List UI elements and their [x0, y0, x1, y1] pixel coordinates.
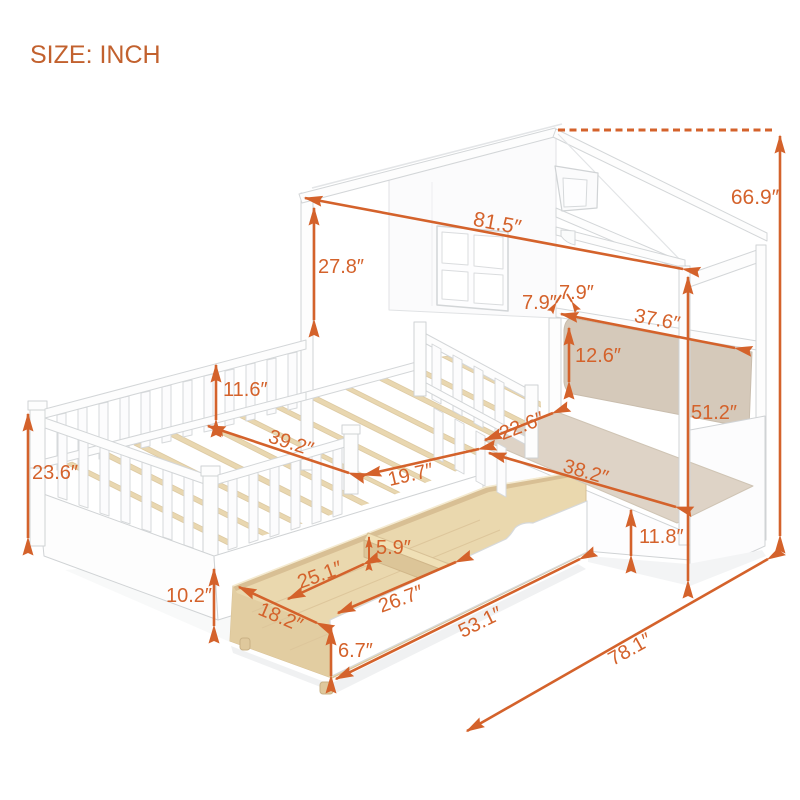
svg-text:23.6″: 23.6″ — [32, 462, 78, 484]
svg-text:51.2″: 51.2″ — [691, 402, 737, 424]
svg-text:5.9″: 5.9″ — [376, 537, 411, 559]
svg-text:11.8″: 11.8″ — [639, 526, 684, 548]
svg-text:6.7″: 6.7″ — [338, 640, 373, 662]
svg-text:12.6″: 12.6″ — [575, 345, 621, 367]
svg-text:SIZE: INCH: SIZE: INCH — [30, 41, 161, 69]
svg-text:66.9″: 66.9″ — [731, 186, 780, 209]
svg-text:7.9″: 7.9″ — [559, 282, 594, 304]
svg-text:10.2″: 10.2″ — [166, 585, 212, 607]
svg-text:27.8″: 27.8″ — [318, 256, 364, 278]
svg-text:7.9″: 7.9″ — [522, 292, 557, 314]
svg-text:11.6″: 11.6″ — [223, 379, 268, 401]
